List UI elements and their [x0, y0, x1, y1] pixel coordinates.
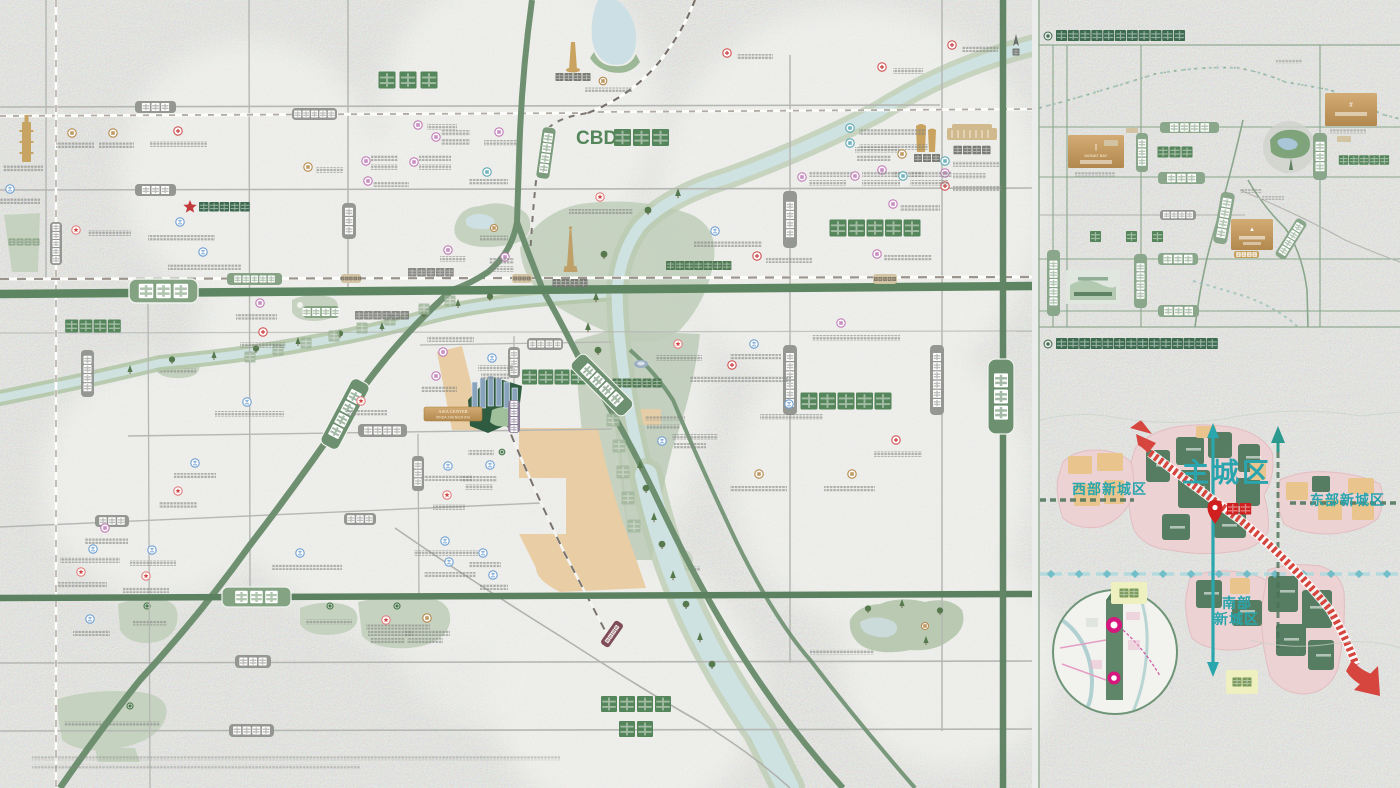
svg-text:ASIA CENTER: ASIA CENTER — [438, 409, 468, 414]
svg-text:#: # — [1349, 101, 1353, 109]
svg-text:南部: 南部 — [1222, 595, 1252, 611]
svg-text:CBD: CBD — [576, 128, 617, 149]
svg-text:新城区: 新城区 — [1214, 611, 1259, 627]
svg-text:||: || — [1095, 143, 1098, 151]
svg-text:XINDA ZHENGZHOU: XINDA ZHENGZHOU — [436, 416, 471, 420]
svg-text:东部新城区: 东部新城区 — [1310, 492, 1385, 508]
svg-text:主城区: 主城区 — [1182, 458, 1272, 488]
svg-text:西部新城区: 西部新城区 — [1072, 481, 1147, 497]
svg-text:▲: ▲ — [1249, 227, 1255, 233]
svg-text:MONAT BAY: MONAT BAY — [1085, 153, 1108, 158]
